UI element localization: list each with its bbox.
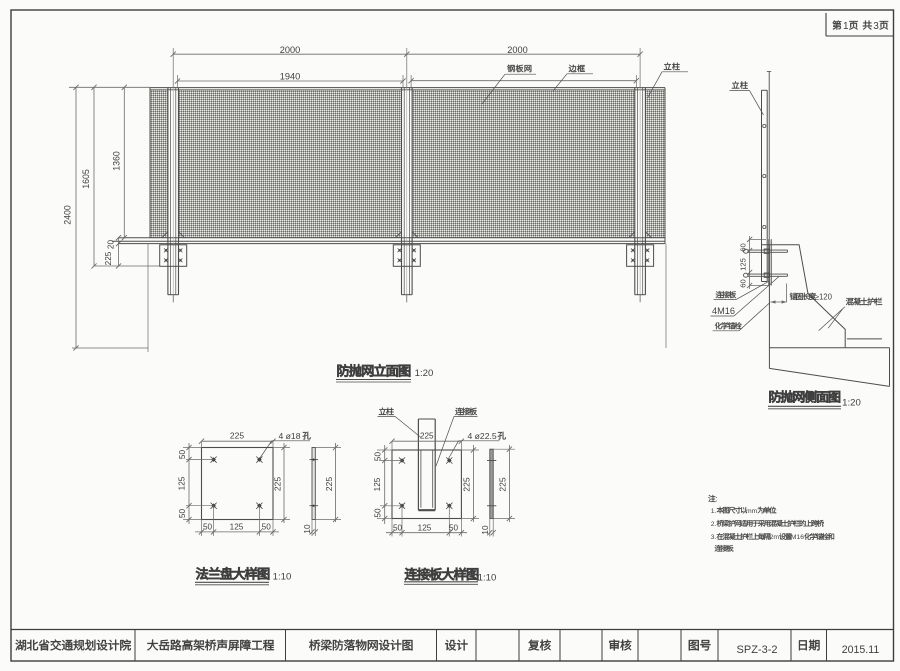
svg-text:2m: 2m <box>770 534 780 541</box>
svg-text:2.: 2. <box>711 521 717 528</box>
svg-text:225: 225 <box>498 477 508 491</box>
svg-text:2000: 2000 <box>280 45 300 55</box>
svg-text:50: 50 <box>178 509 187 519</box>
svg-text:1360: 1360 <box>112 151 122 171</box>
svg-text:1:20: 1:20 <box>415 368 434 379</box>
svg-text:50: 50 <box>203 523 213 532</box>
svg-text:≥120: ≥120 <box>815 292 833 301</box>
svg-text:1:10: 1:10 <box>273 572 292 583</box>
svg-text:60: 60 <box>739 279 748 287</box>
svg-text:50: 50 <box>262 523 272 532</box>
svg-text:50: 50 <box>374 508 383 518</box>
svg-text:mm: mm <box>746 508 758 515</box>
svg-text:1.: 1. <box>711 508 717 515</box>
svg-text:225: 225 <box>420 431 434 440</box>
svg-text:225: 225 <box>273 477 283 491</box>
svg-text:SPZ-3-2: SPZ-3-2 <box>737 644 778 656</box>
svg-text:125: 125 <box>230 523 244 532</box>
svg-text:2015.11: 2015.11 <box>842 644 880 656</box>
svg-text:1:10: 1:10 <box>478 573 497 584</box>
svg-text:225: 225 <box>230 431 244 441</box>
svg-text:4M16: 4M16 <box>712 306 735 316</box>
svg-text:1605: 1605 <box>81 169 91 189</box>
svg-text:1:20: 1:20 <box>842 398 861 409</box>
svg-text:225: 225 <box>324 477 334 491</box>
svg-text:;: ; <box>823 521 825 528</box>
svg-text:125: 125 <box>373 477 382 491</box>
svg-text:;: ; <box>732 546 734 553</box>
svg-text:50: 50 <box>178 450 187 460</box>
svg-text:50: 50 <box>393 523 403 532</box>
svg-text:125: 125 <box>739 258 748 271</box>
svg-text:225: 225 <box>462 477 472 491</box>
svg-text:3: 3 <box>873 21 879 32</box>
svg-text:125: 125 <box>418 523 432 532</box>
svg-text:125: 125 <box>178 476 187 490</box>
svg-text:1: 1 <box>843 21 849 32</box>
svg-text:4 ø22.5: 4 ø22.5 <box>468 431 497 441</box>
svg-text:;: ; <box>775 508 777 515</box>
svg-text:3.: 3. <box>711 534 717 541</box>
svg-text:10: 10 <box>303 524 312 534</box>
svg-text:10: 10 <box>481 525 490 535</box>
svg-text:50: 50 <box>374 452 383 462</box>
svg-text:1940: 1940 <box>280 71 300 81</box>
svg-text::: : <box>715 495 717 504</box>
svg-text:2000: 2000 <box>507 45 527 55</box>
svg-text:2400: 2400 <box>63 205 73 225</box>
svg-text:225: 225 <box>104 251 113 265</box>
svg-text:60: 60 <box>739 243 748 251</box>
svg-text:M16: M16 <box>791 534 804 541</box>
svg-text:20: 20 <box>107 240 116 250</box>
svg-text:50: 50 <box>449 523 459 532</box>
svg-text:4 ø18: 4 ø18 <box>279 431 301 441</box>
